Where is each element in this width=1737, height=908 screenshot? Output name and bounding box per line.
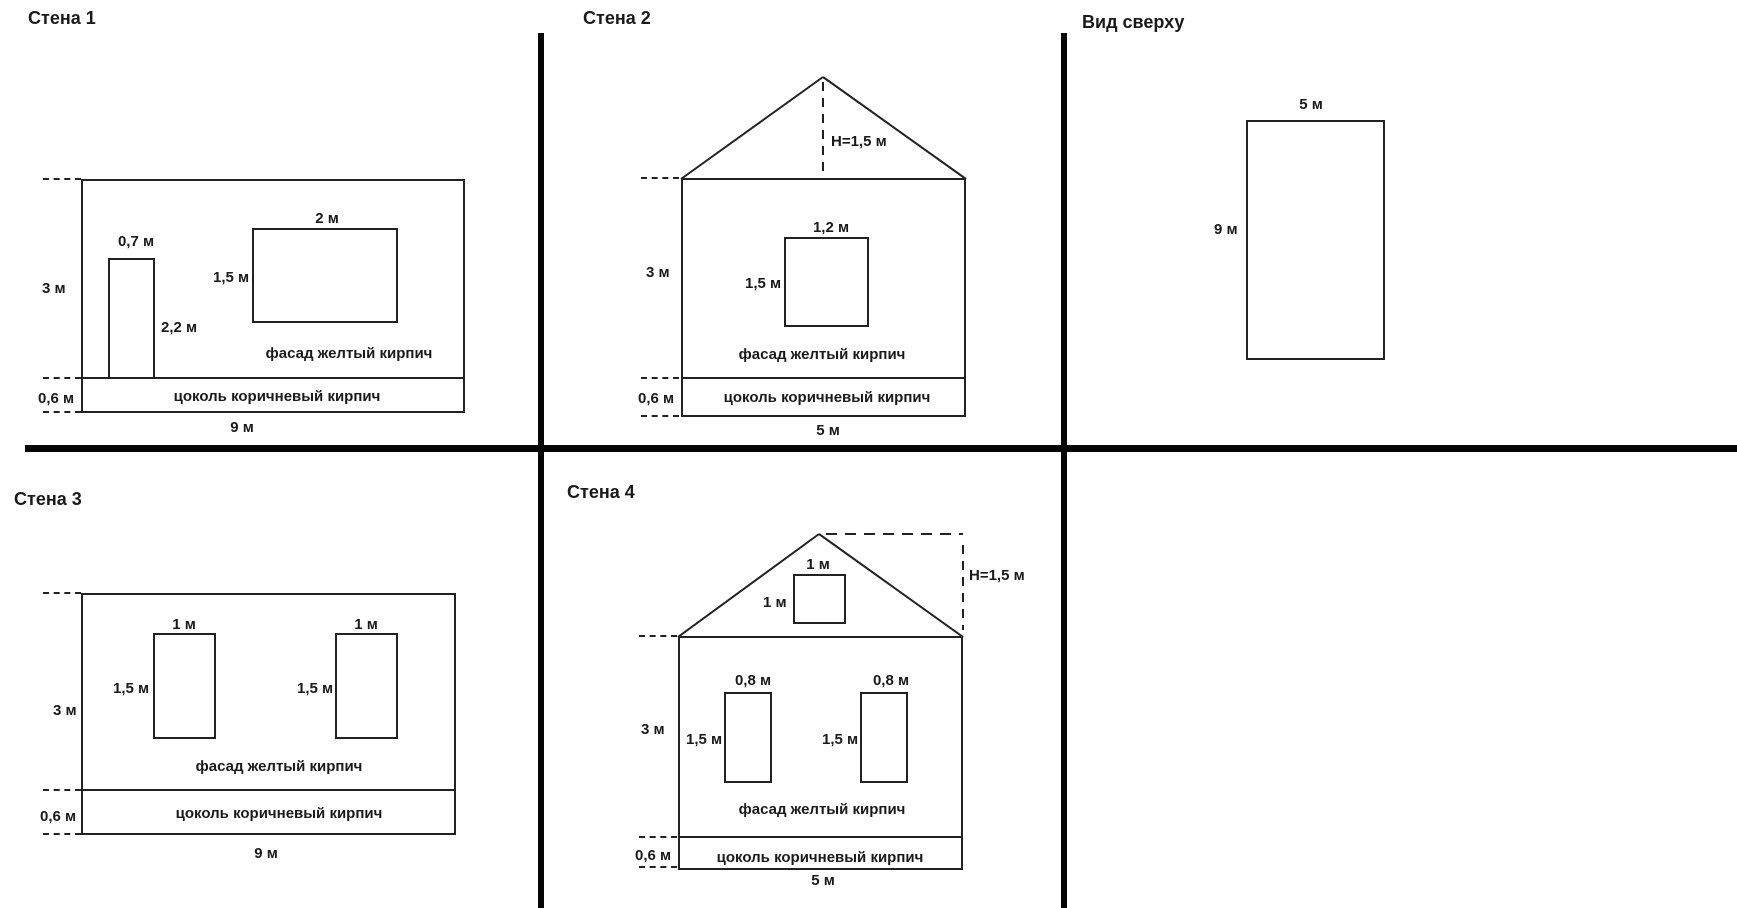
wall4-title: Стена 4 [567, 482, 635, 503]
wall3-width-label: 9 м [254, 846, 278, 861]
wall1-facade-material-label: фасад желтый кирпич [266, 346, 433, 361]
vertical-divider-2 [1061, 33, 1067, 908]
wall2-roof-height-label: H=1,5 м [831, 134, 887, 149]
top-view-width-label: 5 м [1299, 97, 1323, 112]
wall3-window-2 [335, 633, 398, 739]
wall2-window [784, 237, 869, 327]
wall4-window1-height-label: 1,5 м [686, 732, 722, 747]
wall4-facade-material-label: фасад желтый кирпич [739, 802, 906, 817]
wall2-plinth-top-tick [641, 377, 679, 379]
vertical-divider-1 [538, 33, 544, 908]
wall1-door [108, 258, 155, 379]
wall2-window-height-label: 1,5 м [745, 276, 781, 291]
wall1-door-height-label: 2,2 м [161, 320, 197, 335]
wall3-plinth-material-label: цоколь коричневый кирпич [176, 806, 383, 821]
wall3-window1-width-label: 1 м [172, 617, 196, 632]
wall1-plinth-top-tick [43, 377, 81, 379]
wall3-window2-height-label: 1,5 м [297, 681, 333, 696]
wall4-plinth-height-label: 0,6 м [635, 848, 671, 863]
wall1-width-label: 9 м [230, 420, 254, 435]
wall2-facade-material-label: фасад желтый кирпич [739, 347, 906, 362]
wall3-plinth-top-tick [43, 789, 81, 791]
wall1-plinth-height-label: 0,6 м [38, 391, 74, 406]
wall4-bottom-tick [639, 866, 677, 868]
top-view-outline [1246, 120, 1385, 360]
wall1-window [252, 228, 398, 323]
wall1-door-width-label: 0,7 м [118, 234, 154, 249]
wall4-plinth-material-label: цоколь коричневый кирпич [717, 850, 924, 865]
top-view-depth-label: 9 м [1214, 222, 1238, 237]
wall1-top-tick [43, 178, 81, 180]
wall1-plinth-material-label: цоколь коричневый кирпич [174, 389, 381, 404]
wall2-height-label: 3 м [646, 265, 670, 280]
wall4-roof-height-label: H=1,5 м [969, 568, 1025, 583]
wall4-attic-window-width-label: 1 м [806, 557, 830, 572]
wall2-roof-right-slope [823, 77, 966, 179]
wall3-title: Стена 3 [14, 489, 82, 510]
wall2-width-label: 5 м [816, 423, 840, 438]
wall4-window2-height-label: 1,5 м [822, 732, 858, 747]
wall4-width-label: 5 м [811, 873, 835, 888]
wall3-height-label: 3 м [53, 703, 77, 718]
wall2-top-tick [641, 177, 679, 179]
wall3-bottom-tick [43, 833, 81, 835]
wall2-bottom-tick [641, 415, 679, 417]
wall1-window-width-label: 2 м [315, 211, 339, 226]
top-view-title: Вид сверху [1082, 12, 1184, 33]
wall2-window-width-label: 1,2 м [813, 220, 849, 235]
wall4-attic-window-height-label: 1 м [763, 595, 787, 610]
wall3-plinth-height-label: 0,6 м [40, 809, 76, 824]
wall4-plinth-top-tick [639, 836, 677, 838]
wall4-attic-window [793, 574, 846, 624]
horizontal-divider [25, 445, 1737, 452]
wall3-window1-height-label: 1,5 м [113, 681, 149, 696]
wall3-facade-material-label: фасад желтый кирпич [196, 759, 363, 774]
wall4-height-label: 3 м [641, 722, 665, 737]
blueprint-canvas: Стена 1 3 м 0,6 м 9 м 0,7 м 2,2 м 2 м 1,… [0, 0, 1737, 908]
wall2-plinth-material-label: цоколь коричневый кирпич [724, 390, 931, 405]
wall4-window2-width-label: 0,8 м [873, 673, 909, 688]
wall4-window1-width-label: 0,8 м [735, 673, 771, 688]
wall2-roof-left-slope [681, 77, 823, 179]
wall4-window-2 [860, 692, 908, 783]
wall2-plinth-height-label: 0,6 м [638, 391, 674, 406]
wall3-top-tick [43, 592, 81, 594]
wall1-bottom-tick [43, 411, 81, 413]
wall4-top-tick [639, 635, 677, 637]
wall3-window2-width-label: 1 м [354, 617, 378, 632]
wall3-window-1 [153, 633, 216, 739]
wall4-window-1 [724, 692, 772, 783]
wall1-height-label: 3 м [42, 281, 66, 296]
wall1-window-height-label: 1,5 м [213, 270, 249, 285]
wall1-title: Стена 1 [28, 8, 96, 29]
wall2-title: Стена 2 [583, 8, 651, 29]
